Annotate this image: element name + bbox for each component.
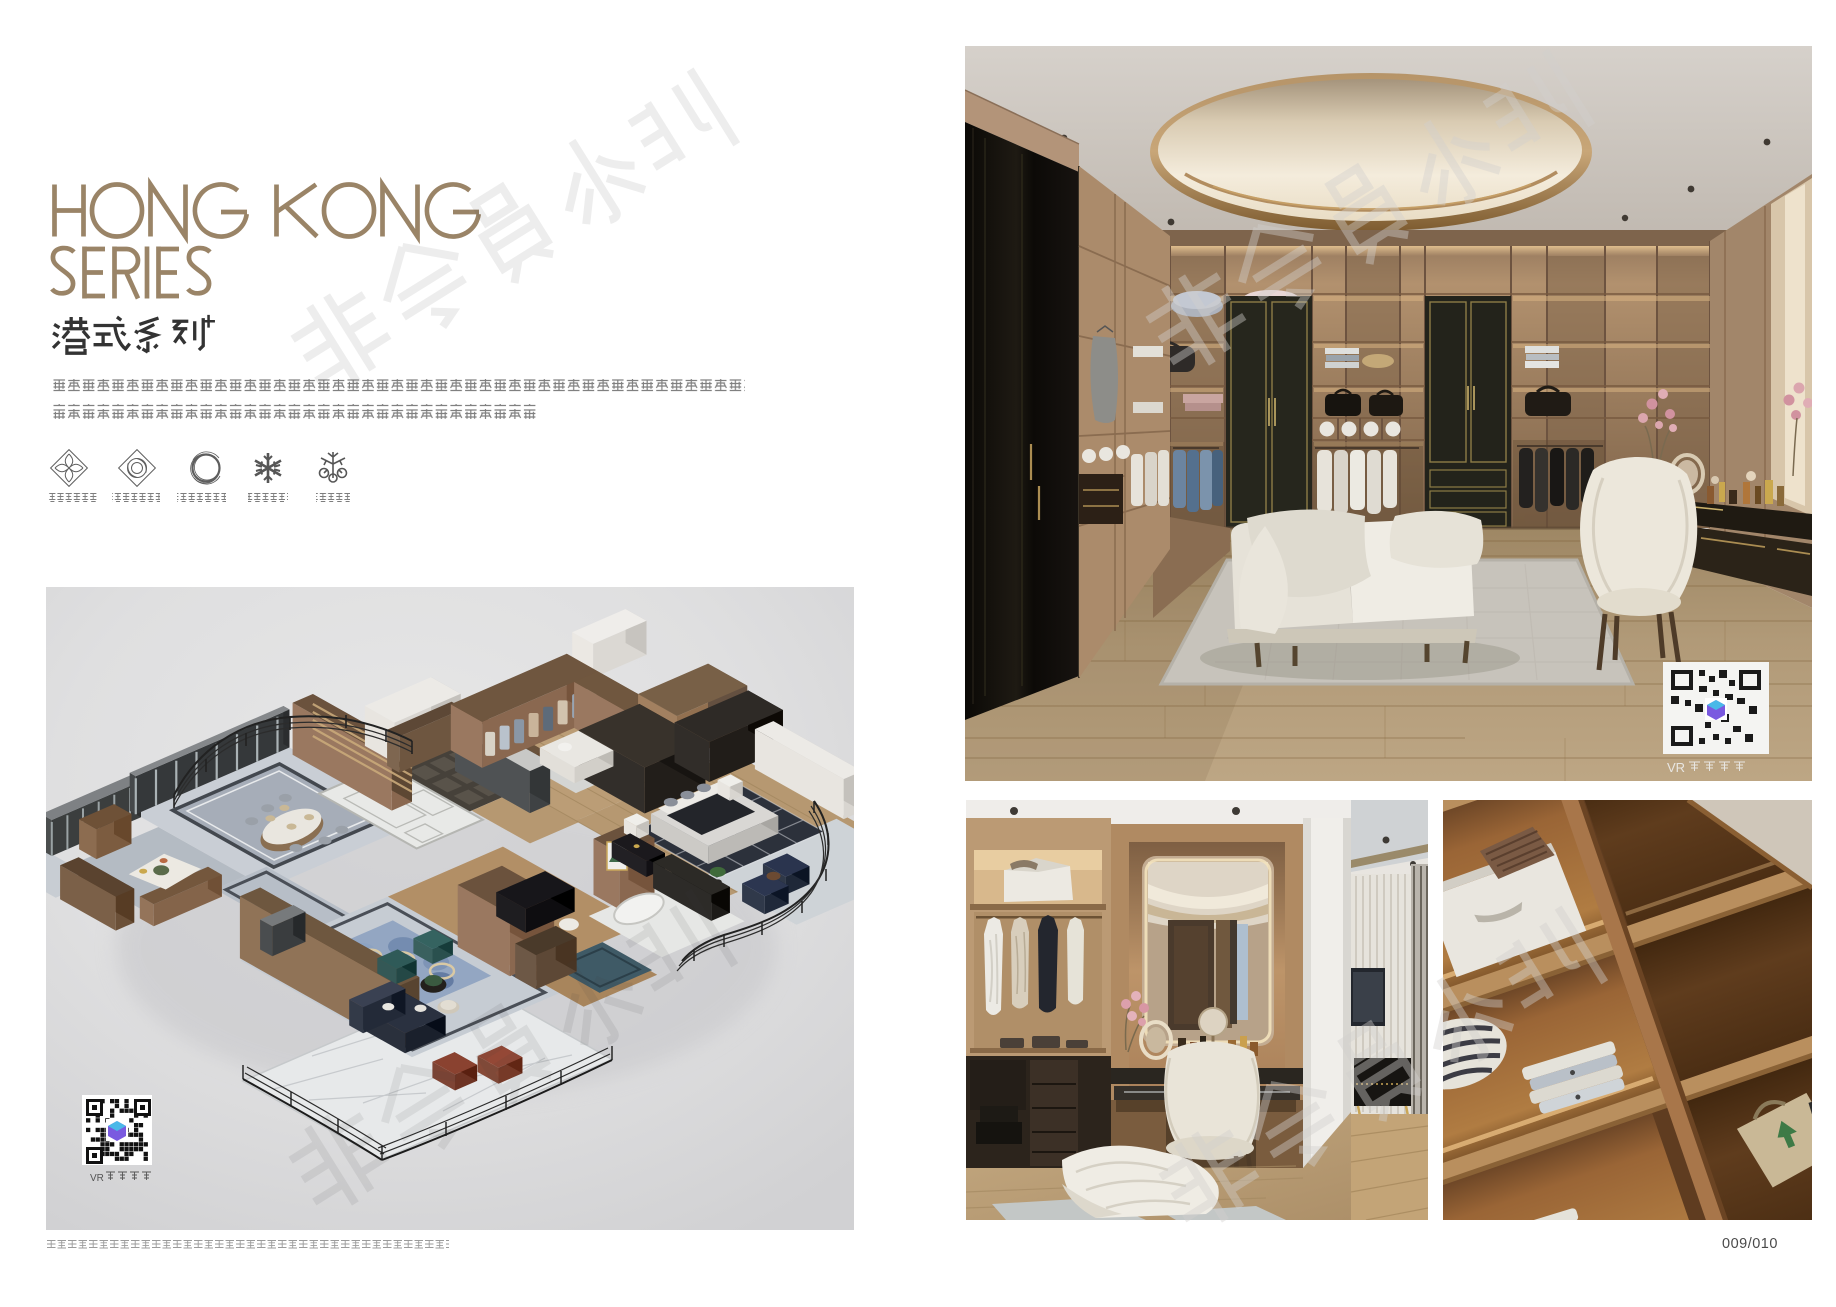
svg-text:VR: VR xyxy=(90,1173,104,1184)
svg-text:VR: VR xyxy=(1667,760,1685,775)
